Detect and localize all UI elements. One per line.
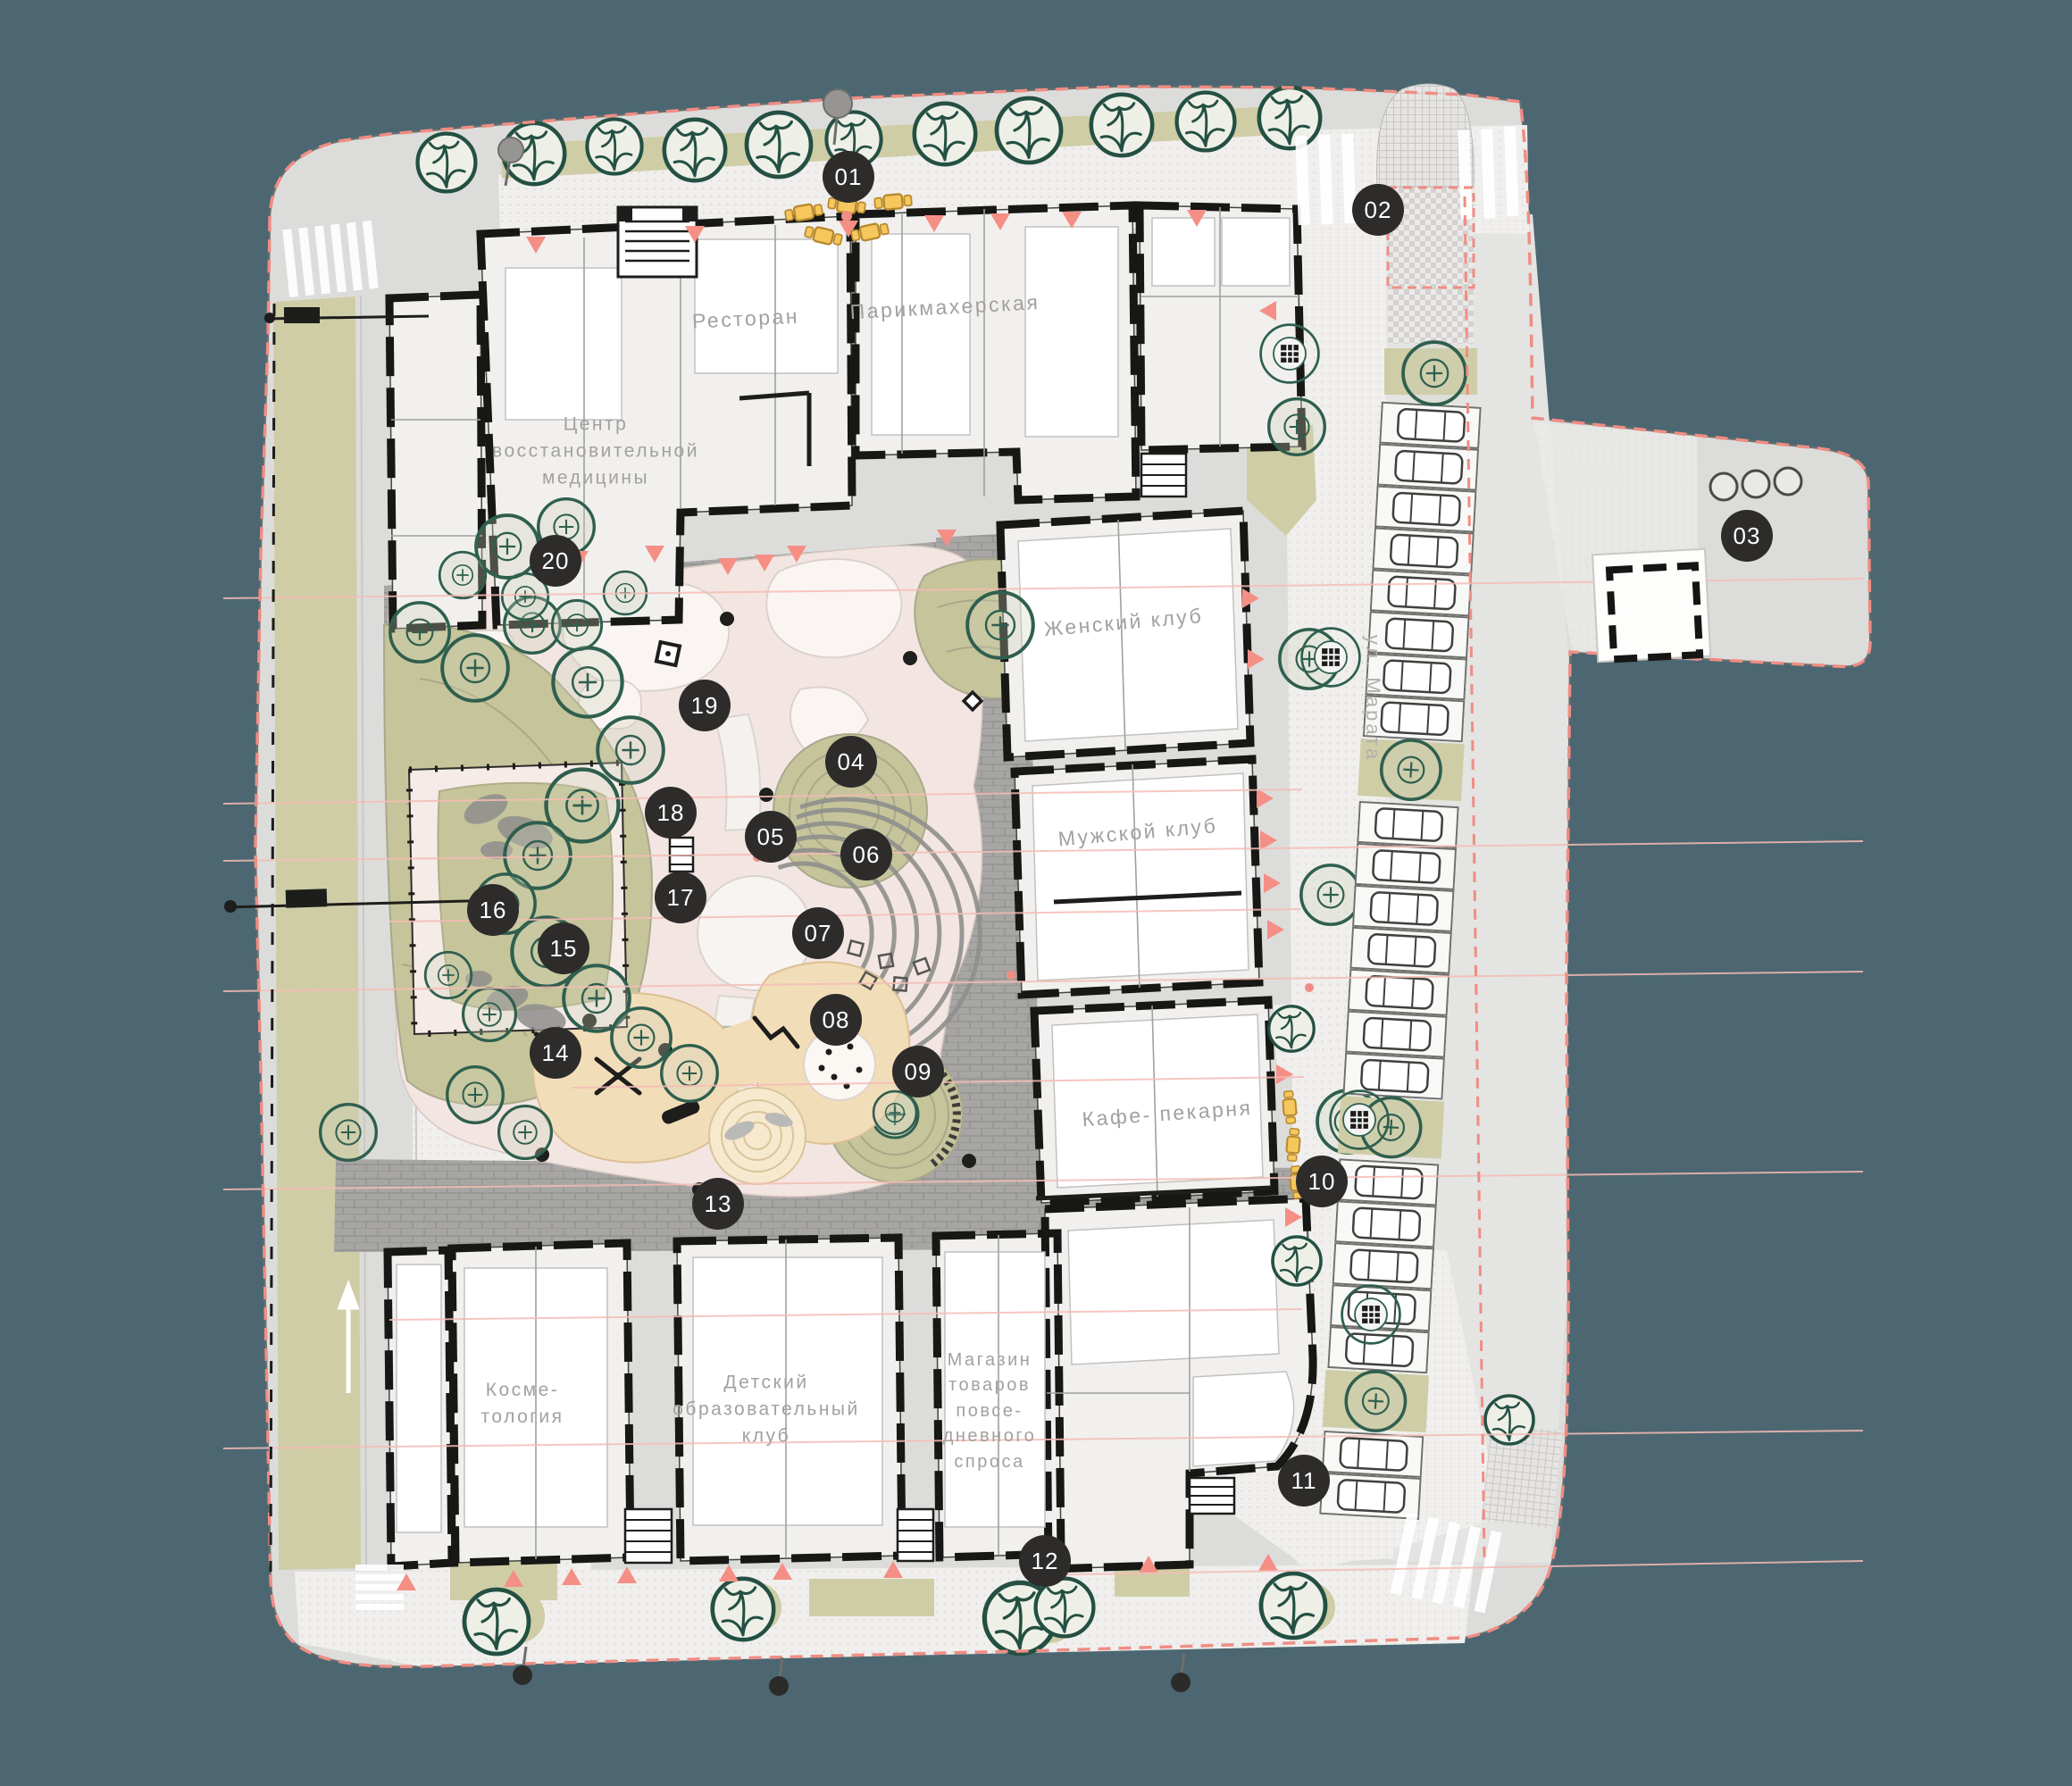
plan-marker-18[interactable]: 18 bbox=[645, 787, 697, 839]
plan-marker-08[interactable]: 08 bbox=[810, 994, 862, 1046]
plan-marker-05[interactable]: 05 bbox=[745, 811, 797, 863]
plan-marker-12[interactable]: 12 bbox=[1019, 1535, 1071, 1587]
site-plan-stage: Ресторан Парикмахерская Центр восстанови… bbox=[0, 0, 2072, 1786]
plan-marker-20[interactable]: 20 bbox=[530, 535, 581, 587]
plan-marker-03[interactable]: 03 bbox=[1721, 510, 1773, 562]
plan-marker-10[interactable]: 10 bbox=[1296, 1156, 1348, 1207]
street-tree bbox=[1403, 342, 1466, 405]
plan-marker-09[interactable]: 09 bbox=[892, 1046, 944, 1097]
plan-marker-14[interactable]: 14 bbox=[530, 1027, 581, 1079]
plan-marker-19[interactable]: 19 bbox=[679, 680, 731, 731]
plan-marker-15[interactable]: 15 bbox=[538, 922, 589, 974]
plan-marker-01[interactable]: 01 bbox=[823, 151, 874, 203]
plan-marker-16[interactable]: 16 bbox=[467, 884, 519, 936]
plan-marker-06[interactable]: 06 bbox=[840, 829, 892, 880]
label-street-marata: ул. Марата bbox=[1361, 635, 1384, 762]
plan-marker-02[interactable]: 02 bbox=[1352, 184, 1404, 236]
plan-marker-17[interactable]: 17 bbox=[655, 872, 706, 923]
site-plan-drawing bbox=[0, 0, 2072, 1786]
plan-marker-13[interactable]: 13 bbox=[692, 1178, 744, 1230]
plan-marker-04[interactable]: 04 bbox=[825, 736, 877, 788]
plan-marker-07[interactable]: 07 bbox=[792, 907, 844, 959]
plan-marker-11[interactable]: 11 bbox=[1278, 1455, 1330, 1506]
